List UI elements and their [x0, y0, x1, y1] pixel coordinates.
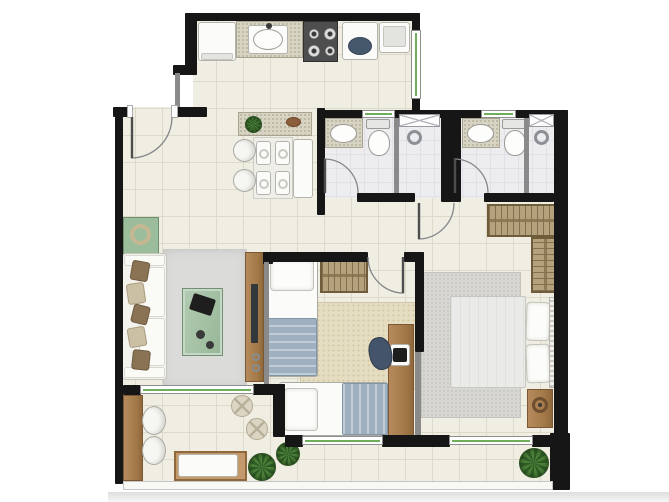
kids-bed-1-pillow	[270, 260, 314, 291]
coffee-table-cup-1	[196, 330, 205, 339]
bath1-shower-glass	[399, 114, 440, 127]
bath2-window	[481, 110, 516, 118]
wall-bath1-bottom-post	[317, 193, 323, 202]
kids-room-door	[368, 257, 404, 293]
dining-bench	[293, 139, 313, 198]
master-closet-top	[487, 204, 560, 237]
entry-door-frame-right	[171, 105, 178, 118]
wall-living-balcony-left	[123, 385, 141, 395]
wall-kitchen-top	[185, 13, 420, 21]
washing-machine-drum	[348, 37, 372, 55]
kitchen-faucet	[266, 23, 272, 29]
bath1-toilet-bowl	[368, 130, 390, 156]
bath1-window-glass-line	[365, 113, 392, 115]
kids-wardrobe	[320, 257, 368, 293]
master-room-window-glass-line	[452, 440, 530, 442]
master-pillow-2	[525, 344, 550, 384]
bath1-sink	[330, 124, 357, 143]
floor-plan-canvas	[0, 0, 669, 502]
balcony-parapet	[123, 481, 553, 490]
bath1-shower-head-icon	[407, 130, 422, 145]
bath1-toilet-tank	[366, 119, 390, 129]
fruit-bowl	[286, 117, 301, 127]
desk-computer-screen	[393, 348, 407, 362]
kitchen-window	[411, 30, 421, 99]
nightstand-lamp-center	[538, 403, 542, 407]
laundry-tub-basin	[383, 26, 406, 47]
balcony-cabinet	[123, 395, 143, 481]
pouf-1	[231, 395, 253, 417]
bar-plant	[245, 116, 262, 133]
television	[251, 284, 258, 343]
sofa-pillow-1	[129, 260, 150, 283]
coffee-table-cup-2	[206, 341, 214, 349]
wall-master-window-right	[532, 435, 554, 447]
master-bed-mattress	[450, 296, 526, 388]
bath2-door	[454, 159, 488, 193]
balcony-plant-3	[519, 448, 549, 478]
sofa-pillow-4	[126, 326, 147, 349]
bath1-window	[362, 110, 395, 118]
kids-room-window	[302, 436, 383, 445]
wall-kids-master	[415, 252, 424, 352]
dining-chair-2	[233, 169, 256, 192]
master-room-window	[449, 436, 533, 445]
kids-bed-2-blanket	[342, 383, 388, 435]
wall-living-kids-thin	[264, 262, 269, 385]
master-room-door	[418, 203, 454, 239]
balcony-bench-top	[178, 454, 238, 477]
stove	[303, 21, 338, 62]
tv-knob-2	[252, 364, 260, 372]
master-pillow-1	[525, 302, 550, 342]
bath2-sink	[467, 124, 494, 143]
wall-between-windows	[382, 435, 450, 447]
wall-entry-right	[177, 107, 207, 117]
plate-3	[259, 179, 269, 189]
kids-bed-2-pillow	[284, 388, 318, 431]
wall-hall-top	[357, 193, 415, 202]
bath2-toilet-bowl	[504, 130, 526, 156]
sofa-pillow-2	[126, 282, 147, 305]
balcony-sliding-door-glass-line	[143, 389, 251, 391]
wall-kids-master-thin	[415, 352, 421, 437]
balcony-chair-1	[142, 406, 166, 435]
balcony-plant-1	[248, 453, 276, 481]
wall-kids-window-left	[285, 435, 303, 447]
bath2-window-glass-line	[484, 113, 513, 115]
kitchen-sink-basin	[253, 29, 283, 50]
sofa-pillow-5	[131, 349, 151, 371]
wall-right-outer	[554, 110, 568, 440]
bath2-shower-glass	[529, 114, 554, 127]
bath2-toilet-tank	[502, 119, 526, 129]
wall-bath2-bottom	[484, 193, 554, 202]
kitchen-window-glass-line	[415, 33, 417, 96]
pouf-2	[246, 418, 268, 440]
wall-kids-top	[265, 252, 368, 262]
dining-chair-1	[233, 139, 256, 162]
bath2-shower-head-icon	[534, 130, 549, 145]
entry-door	[131, 117, 172, 158]
refrigerator-handle	[201, 53, 233, 60]
page-shadow	[108, 492, 669, 502]
plate-1	[259, 149, 269, 159]
plate-4	[278, 179, 288, 189]
plate-2	[278, 149, 288, 159]
basket-decor	[130, 224, 151, 245]
balcony-sliding-door	[140, 385, 254, 394]
kids-bed-1-blanket	[267, 318, 317, 376]
tv-knob-1	[252, 353, 260, 361]
wall-left-outer	[115, 107, 123, 484]
kids-room-window-glass-line	[305, 440, 380, 442]
wall-kids-balcony-side	[273, 384, 285, 437]
bath1-door	[324, 159, 358, 193]
balcony-chair-2	[142, 436, 166, 465]
kids-desk	[388, 324, 414, 436]
